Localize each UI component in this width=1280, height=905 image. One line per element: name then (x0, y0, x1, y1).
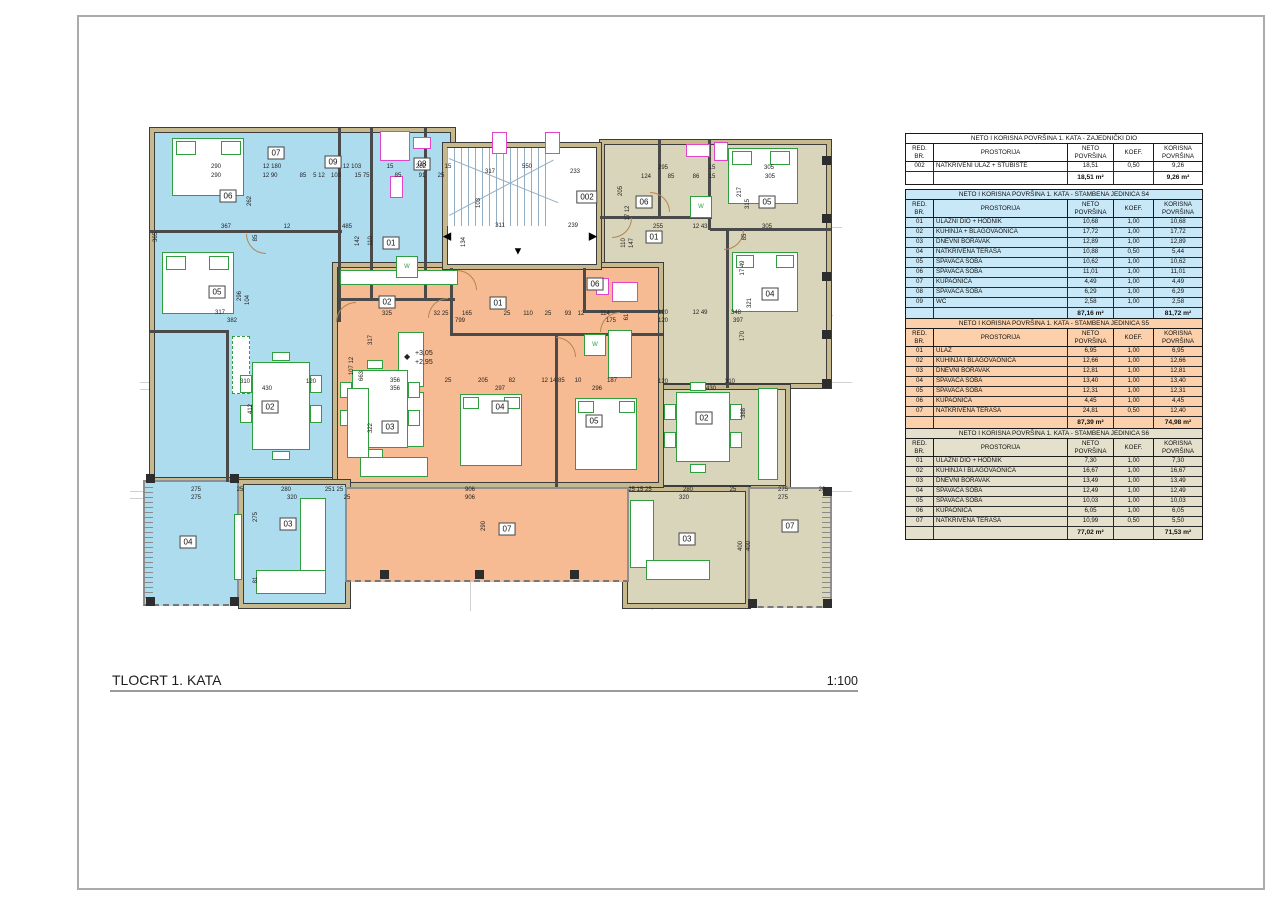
table-row: 07KUPAONICA4,491,004,49 (906, 278, 1202, 288)
table-cell: 12,31 (1154, 387, 1202, 396)
dimension-label: 15 (709, 165, 716, 171)
column-marker (822, 330, 831, 339)
furniture-item (690, 382, 706, 391)
table-header-cell: KOEF. (1114, 329, 1154, 346)
dimension-label: 12 180 (263, 164, 281, 170)
table-cell: 13,49 (1154, 477, 1202, 486)
table-cell: 002 (906, 162, 934, 171)
furniture-item (732, 151, 752, 165)
table-cell: NATKRIVENA TERASA (934, 407, 1068, 416)
table-cell: 01 (906, 347, 934, 356)
dimension-label: 275 (191, 487, 201, 493)
table-cell: 12,31 (1068, 387, 1114, 396)
table-cell: SPAVAĆA SOBA (934, 497, 1068, 506)
table-row: 002NATKRIVENI ULAZ + STUBIŠTE18,510,509,… (906, 162, 1202, 172)
table-cell: 07 (906, 517, 934, 526)
table-row: 06KUPAONICA6,051,006,05 (906, 507, 1202, 517)
table-cell: KUHINJA + BLAGOVAONICA (934, 228, 1068, 237)
dimension-label: 315 (745, 199, 751, 209)
dimension-label: 663 (359, 371, 365, 381)
table-cell: 1,00 (1114, 278, 1154, 287)
table-cell: 1,00 (1114, 357, 1154, 366)
table-row: 05SPAVAĆA SOBA12,311,0012,31 (906, 387, 1202, 397)
wall-segment (583, 310, 663, 313)
dimension-label: 252 (416, 164, 426, 170)
table-cell: KUHINJA I BLAGOVAONICA (934, 467, 1068, 476)
terrace-railing-hatch (822, 492, 832, 602)
table-cell: 10,03 (1068, 497, 1114, 506)
table-cell: 1,00 (1114, 487, 1154, 496)
room-number-label: 04 (762, 288, 779, 301)
table-header-cell: NETO POVRŠINA (1068, 200, 1114, 217)
table-cell: 9,26 (1154, 162, 1202, 171)
table-cell: NATKRIVENI ULAZ + STUBIŠTE (934, 162, 1068, 171)
room-number-label: 01 (383, 237, 400, 250)
column-marker (570, 570, 579, 579)
drawing-title: TLOCRT 1. KATA (112, 672, 221, 688)
dimension-label: 400 (738, 541, 744, 551)
dimension-label: 430 (262, 386, 272, 392)
table-cell: 0,50 (1114, 248, 1154, 257)
dimension-label: 290 (481, 521, 487, 531)
table-cell: KUPAONICA (934, 278, 1068, 287)
table-row: 03DNEVNI BORAVAK12,811,0012,81 (906, 367, 1202, 377)
table-cell: 0,50 (1114, 517, 1154, 526)
dimension-label: 147 (629, 238, 635, 248)
table-total-cell: 77,02 m² (1068, 527, 1114, 539)
table-header-row: RED. BR.PROSTORIJANETO POVRŠINAKOEF.KORI… (906, 329, 1202, 347)
dimension-label: 356 (390, 386, 400, 392)
dimension-label: 412 (248, 404, 254, 414)
furniture-item (664, 432, 676, 448)
table-header-cell: PROSTORIJA (934, 329, 1068, 346)
dimension-label: 322 (368, 423, 374, 433)
table-cell: 2,58 (1068, 298, 1114, 307)
room-number-label: 02 (379, 296, 396, 309)
room-number-label: 03 (679, 533, 696, 546)
table-cell: 10,88 (1068, 248, 1114, 257)
table-cell: DNEVNI BORAVAK (934, 477, 1068, 486)
dimension-label: 348 (731, 310, 741, 316)
table-cell: 17,72 (1154, 228, 1202, 237)
dimension-label: 93 (565, 311, 572, 317)
table-header-cell: RED. BR. (906, 439, 934, 456)
dimension-label: 310 (725, 379, 735, 385)
areas-table-0: NETO I KORISNA POVRŠINA 1. KATA - ZAJEDN… (905, 133, 1203, 185)
table-header-cell: NETO POVRŠINA (1068, 439, 1114, 456)
dimension-label: 91 (419, 173, 426, 179)
dimension-label: 251 25 (325, 487, 343, 493)
table-row: 01ULAZNI DIO + HODNIK7,301,007,30 (906, 457, 1202, 467)
table-cell: ULAZNI DIO + HODNIK (934, 218, 1068, 227)
dimension-label: 430 (706, 386, 716, 392)
table-row: 04NATKRIVENA TERASA10,880,505,44 (906, 248, 1202, 258)
table-cell: 02 (906, 357, 934, 366)
table-cell: 07 (906, 407, 934, 416)
room-number-label: 04 (492, 401, 509, 414)
table-total-cell (906, 527, 934, 539)
table-cell: 4,45 (1154, 397, 1202, 406)
dimension-label: 12 (578, 311, 585, 317)
table-title: NETO I KORISNA POVRŠINA 1. KATA - STAMBE… (906, 190, 1202, 200)
furniture-item (272, 451, 290, 460)
table-cell: 13,40 (1068, 377, 1114, 386)
furniture-item (646, 560, 710, 580)
table-cell: NATKRIVENA TERASA (934, 517, 1068, 526)
table-total-cell: 71,53 m² (1154, 527, 1202, 539)
table-row: 03DNEVNI BORAVAK13,491,0013,49 (906, 477, 1202, 487)
table-cell: 0,50 (1114, 162, 1154, 171)
dimension-label: 25 (438, 173, 445, 179)
room-number-label: 07 (782, 520, 799, 533)
furniture-item (676, 392, 730, 462)
table-cell: 11,01 (1068, 268, 1114, 277)
table-cell: KUPAONICA (934, 507, 1068, 516)
furniture-item (209, 256, 229, 270)
drawing-sheet: WWW0607090805010203040020201060304050706… (0, 0, 1280, 905)
table-cell: 10,68 (1154, 218, 1202, 227)
table-cell: 6,95 (1154, 347, 1202, 356)
room-number-label: 002 (576, 191, 597, 204)
table-cell: 08 (906, 288, 934, 297)
furniture-item (758, 388, 778, 480)
floor-plan: WWW0607090805010203040020201060304050706… (0, 0, 905, 660)
furniture-item (690, 464, 706, 473)
table-row: 02KUHINJA + BLAGOVAONICA17,721,0017,72 (906, 228, 1202, 238)
furniture-item (300, 498, 326, 574)
sanitary-fixture (686, 144, 710, 157)
dimension-label: 239 (568, 223, 578, 229)
table-cell: 1,00 (1114, 457, 1154, 466)
furniture-item (234, 514, 242, 580)
column-marker (822, 272, 831, 281)
area-unit-s5-terrace (345, 487, 629, 582)
dimension-label: 906 (465, 495, 475, 501)
table-cell: 1,00 (1114, 477, 1154, 486)
stair-treads-hatch (447, 148, 547, 226)
table-cell: 0,50 (1114, 407, 1154, 416)
table-cell: 09 (906, 298, 934, 307)
table-header-row: RED. BR.PROSTORIJANETO POVRŠINAKOEF.KORI… (906, 439, 1202, 457)
sanitary-fixture (545, 132, 560, 154)
direction-arrow-icon: ▼ (513, 247, 524, 258)
room-number-label: 05 (759, 196, 776, 209)
furniture-item (578, 401, 594, 413)
dimension-label: 124 (641, 174, 651, 180)
table-row: 01ULAZ6,951,006,95 (906, 347, 1202, 357)
table-cell: SPAVAĆA SOBA (934, 288, 1068, 297)
dimension-label: 217 (737, 187, 743, 197)
table-total-cell: 9,26 m² (1154, 172, 1202, 184)
dimension-label: 12 49 (692, 310, 707, 316)
room-number-label: 02 (696, 412, 713, 425)
dimension-label: 311 (495, 223, 505, 229)
table-row: 06KUPAONICA4,451,004,45 (906, 397, 1202, 407)
areas-table-1: NETO I KORISNA POVRŠINA 1. KATA - STAMBE… (905, 189, 1203, 321)
dimension-label: 317 (368, 335, 374, 345)
dimension-label: 15 (709, 174, 716, 180)
table-cell: 12,66 (1068, 357, 1114, 366)
dimension-label: 12 (284, 224, 291, 230)
table-cell: 12,89 (1068, 238, 1114, 247)
dimension-label: 10 (575, 378, 582, 384)
table-row: 04SPAVAĆA SOBA13,401,0013,40 (906, 377, 1202, 387)
dimension-label: 17 12 (625, 205, 631, 220)
table-total-cell (906, 172, 934, 184)
table-cell: 1,00 (1114, 258, 1154, 267)
table-cell: 1,00 (1114, 367, 1154, 376)
washing-machine: W (690, 196, 712, 218)
dimension-label: 25 (504, 311, 511, 317)
table-cell: 03 (906, 477, 934, 486)
table-cell: 1,00 (1114, 387, 1154, 396)
table-row: 09WC2,581,002,58 (906, 298, 1202, 308)
table-cell: SPAVAĆA SOBA (934, 268, 1068, 277)
dimension-label: 275 (253, 512, 259, 522)
furniture-item (408, 382, 420, 398)
table-header-cell: PROSTORIJA (934, 144, 1068, 161)
table-cell: 05 (906, 387, 934, 396)
dimension-label: 134 (461, 237, 467, 247)
dimension-label: 305 (762, 224, 772, 230)
dimension-label: 25 (344, 495, 351, 501)
table-cell: 6,05 (1154, 507, 1202, 516)
level-annotation: ◆+3,05+2,95 (415, 349, 433, 367)
table-header-cell: KOEF. (1114, 439, 1154, 456)
table-row: 06SPAVAĆA SOBA11,011,0011,01 (906, 268, 1202, 278)
dimension-label: 12 103 (343, 164, 361, 170)
column-marker (230, 597, 239, 606)
table-header-cell: RED. BR. (906, 329, 934, 346)
table-cell: 12,81 (1154, 367, 1202, 376)
table-total-cell (934, 527, 1068, 539)
room-number-label: 06 (636, 196, 653, 209)
dimension-label: 295 (658, 165, 668, 171)
table-cell: SPAVAĆA SOBA (934, 377, 1068, 386)
dimension-label: 321 (747, 298, 753, 308)
table-cell: 1,00 (1114, 288, 1154, 297)
table-header-cell: NETO POVRŠINA (1068, 144, 1114, 161)
table-cell: 12,66 (1154, 357, 1202, 366)
dimension-label: 388 (741, 408, 747, 418)
dimension-label: 320 (287, 495, 297, 501)
dimension-label: 12 90 (262, 173, 277, 179)
table-cell: 10,62 (1068, 258, 1114, 267)
furniture-item (463, 397, 479, 409)
dimension-label: 305 (764, 165, 774, 171)
area-unit-s6-terrace (748, 487, 832, 608)
table-cell: 06 (906, 507, 934, 516)
dimension-label: 17 49 (740, 260, 746, 275)
table-cell: KUHINJA I BLAGOVAONICA (934, 357, 1068, 366)
table-header-row: RED. BR.PROSTORIJANETO POVRŠINAKOEF.KORI… (906, 144, 1202, 162)
dimension-label: 85 (742, 234, 748, 241)
table-cell: 1,00 (1114, 238, 1154, 247)
dimension-label: 317 (215, 310, 225, 316)
table-cell: 1,00 (1114, 298, 1154, 307)
dimension-label: 275 (778, 495, 788, 501)
table-cell: 17,72 (1068, 228, 1114, 237)
table-cell: 1,00 (1114, 347, 1154, 356)
table-row: 01ULAZNI DIO + HODNIK10,681,0010,68 (906, 218, 1202, 228)
table-cell: 07 (906, 278, 934, 287)
table-header-cell: KORISNA POVRŠINA (1154, 329, 1202, 346)
table-cell: 12,81 (1068, 367, 1114, 376)
table-cell: 6,29 (1154, 288, 1202, 297)
dimension-label: 85 (253, 235, 259, 242)
table-cell: 13,40 (1154, 377, 1202, 386)
table-cell: WC (934, 298, 1068, 307)
dimension-label: 82 (509, 378, 516, 384)
table-cell: 02 (906, 228, 934, 237)
dimension-label: 107 12 (349, 357, 355, 375)
washing-machine: W (396, 256, 418, 278)
dimension-label: 320 (679, 495, 689, 501)
table-cell: 4,49 (1154, 278, 1202, 287)
table-header-row: RED. BR.PROSTORIJANETO POVRŠINAKOEF.KORI… (906, 200, 1202, 218)
sanitary-fixture (380, 131, 410, 161)
table-cell: 10,99 (1068, 517, 1114, 526)
room-number-label: 03 (280, 518, 297, 531)
table-row: 03DNEVNI BORAVAK12,891,0012,89 (906, 238, 1202, 248)
dimension-label: 25 15 25 (628, 487, 651, 493)
dimension-label: 233 (570, 169, 580, 175)
title-underline (110, 690, 858, 692)
table-cell: 11,01 (1154, 268, 1202, 277)
dimension-label: 367 (221, 224, 231, 230)
dimension-label: 280 (683, 487, 693, 493)
dimension-label: 61 (624, 314, 630, 321)
table-cell: ULAZNI DIO + HODNIK (934, 457, 1068, 466)
areas-table-2: NETO I KORISNA POVRŠINA 1. KATA - STAMBE… (905, 318, 1203, 430)
column-marker (823, 599, 832, 608)
table-cell: DNEVNI BORAVAK (934, 367, 1068, 376)
table-cell: 02 (906, 467, 934, 476)
dimension-label: 110 (621, 238, 627, 248)
table-cell: KUPAONICA (934, 397, 1068, 406)
room-number-label: 01 (490, 297, 507, 310)
sanitary-fixture (413, 137, 431, 149)
room-number-label: 05 (586, 415, 603, 428)
table-cell: ULAZ (934, 347, 1068, 356)
dimension-label: 86 (693, 174, 700, 180)
table-cell: 05 (906, 497, 934, 506)
dimension-label: 170 (740, 331, 746, 341)
column-marker (146, 597, 155, 606)
table-cell: 1,00 (1114, 218, 1154, 227)
dimension-label: 85 (668, 174, 675, 180)
table-cell: 24,81 (1068, 407, 1114, 416)
table-row: 05SPAVAĆA SOBA10,031,0010,03 (906, 497, 1202, 507)
dimension-label: 15 (387, 164, 394, 170)
room-number-label: 07 (268, 147, 285, 160)
furniture-item (664, 404, 676, 420)
table-cell: SPAVAĆA SOBA (934, 487, 1068, 496)
dimension-label: 110 (368, 236, 374, 246)
column-marker (748, 599, 757, 608)
dimension-label: 290 (211, 164, 221, 170)
table-cell: NATKRIVENA TERASA (934, 248, 1068, 257)
dimension-label: 310 (240, 379, 250, 385)
table-total-cell (1114, 172, 1154, 184)
dimension-label: 120 (658, 310, 668, 316)
table-cell: 03 (906, 238, 934, 247)
column-marker (822, 379, 831, 388)
dimension-label: 120 (306, 379, 316, 385)
direction-arrow-icon: ◀ (443, 232, 451, 243)
room-number-label: 05 (209, 286, 226, 299)
wall-segment (150, 230, 342, 233)
furniture-item (630, 500, 654, 568)
table-header-cell: KORISNA POVRŠINA (1154, 144, 1202, 161)
room-number-label: 02 (262, 401, 279, 414)
table-row: 07NATKRIVENA TERASA10,990,505,50 (906, 517, 1202, 527)
dimension-label: 114 (600, 311, 610, 317)
table-cell: 16,67 (1154, 467, 1202, 476)
dimension-label: 5 12 (313, 173, 325, 179)
table-cell: 2,58 (1154, 298, 1202, 307)
room-number-label: 03 (382, 421, 399, 434)
table-cell: 5,50 (1154, 517, 1202, 526)
table-cell: 4,49 (1068, 278, 1114, 287)
table-row: 07NATKRIVENA TERASA24,810,5012,40 (906, 407, 1202, 417)
dimension-label: 297 (495, 386, 505, 392)
room-number-label: 06 (587, 278, 604, 291)
level-value: +2,95 (415, 358, 433, 367)
dimension-label: 296 (237, 291, 243, 301)
table-cell: 16,67 (1068, 467, 1114, 476)
dimension-label: 175 (606, 318, 616, 324)
dimension-label: 12 14 85 (541, 378, 564, 384)
table-cell: 03 (906, 367, 934, 376)
table-cell: 1,00 (1114, 507, 1154, 516)
table-title: NETO I KORISNA POVRŠINA 1. KATA - STAMBE… (906, 429, 1202, 439)
table-cell: SPAVAĆA SOBA (934, 387, 1068, 396)
furniture-item (310, 405, 322, 423)
dimension-label: 20 (819, 487, 826, 493)
dimension-label: 799 (455, 318, 465, 324)
dimension-label: 906 (465, 487, 475, 493)
table-row: 05SPAVAĆA SOBA10,621,0010,62 (906, 258, 1202, 268)
table-header-cell: NETO POVRŠINA (1068, 329, 1114, 346)
table-total-row: 18,51 m²9,26 m² (906, 172, 1202, 184)
table-cell: 5,44 (1154, 248, 1202, 257)
dimension-label: 32 25 (433, 311, 448, 317)
furniture-item (776, 255, 794, 268)
table-cell: 06 (906, 268, 934, 277)
wall-segment (226, 330, 229, 482)
furniture-item (176, 141, 196, 155)
table-cell: 12,40 (1154, 407, 1202, 416)
table-title: NETO I KORISNA POVRŠINA 1. KATA - ZAJEDN… (906, 134, 1202, 144)
furniture-item (272, 352, 290, 361)
dimension-label: 110 (523, 311, 533, 317)
wall-segment (555, 336, 558, 487)
furniture-item (770, 151, 790, 165)
dimension-label: 262 (247, 196, 253, 206)
room-number-label: 07 (499, 523, 516, 536)
column-marker (475, 570, 484, 579)
dimension-label: 365 (153, 232, 159, 242)
table-cell: 18,51 (1068, 162, 1114, 171)
dimension-label: 280 (281, 487, 291, 493)
terrace-railing-hatch (143, 487, 153, 599)
table-cell: SPAVAĆA SOBA (934, 258, 1068, 267)
table-header-cell: KOEF. (1114, 200, 1154, 217)
table-cell: 1,00 (1114, 228, 1154, 237)
table-cell: 4,45 (1068, 397, 1114, 406)
dimension-label: 317 (485, 169, 495, 175)
